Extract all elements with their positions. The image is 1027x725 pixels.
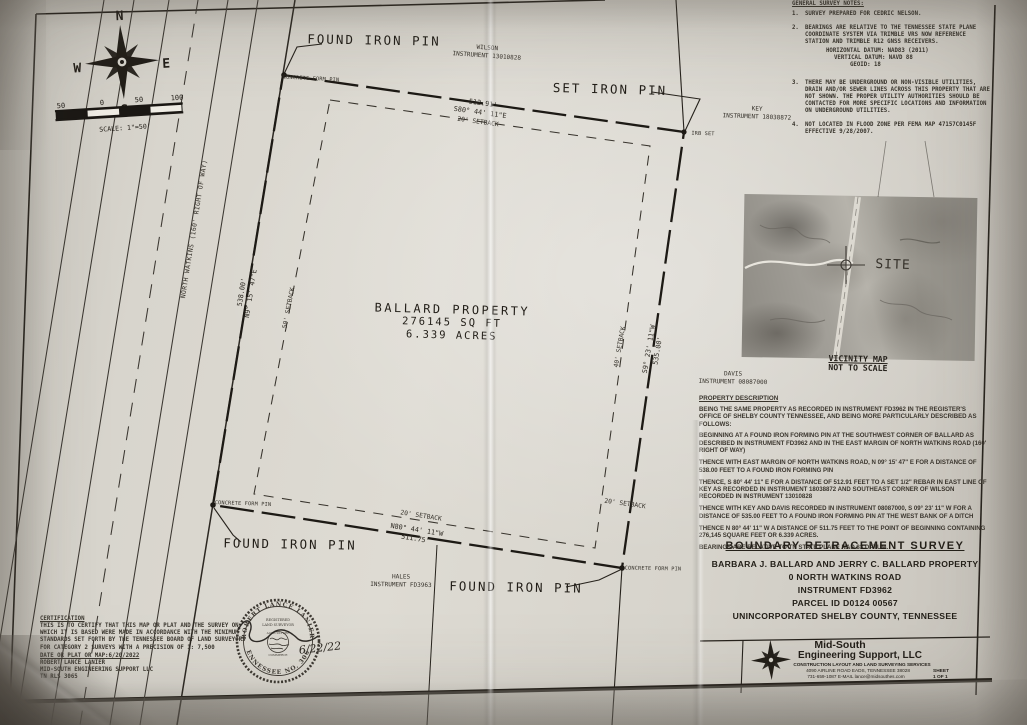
- note-item: 2. BEARINGS ARE RELATIVE TO THE TENNESSE…: [792, 25, 990, 46]
- certification-block: CERTIFICATION THIS IS TO CERTIFY THAT TH…: [40, 616, 252, 681]
- ditch-line: [612, 568, 622, 725]
- note-text: BEARINGS ARE RELATIVE TO THE TENNESSEE S…: [805, 25, 990, 46]
- key-adjoiner-label: KEY INSTRUMENT 18038872: [722, 104, 791, 121]
- note-item: 1. SURVEY PREPARED FOR CEDRIC NELSON.: [792, 11, 990, 18]
- instrument-line: INSTRUMENT FD3962: [699, 584, 991, 597]
- hales-instrument: INSTRUMENT FD3963: [370, 580, 432, 589]
- owner-line: BARBARA J. BALLARD AND JERRY C. BALLARD …: [699, 558, 991, 571]
- certification-title: CERTIFICATION: [40, 616, 252, 623]
- davis-instrument: INSTRUMENT 08087000: [699, 377, 768, 386]
- general-survey-notes: GENERAL SURVEY NOTES: 1. SURVEY PREPARED…: [792, 1, 990, 143]
- border-bottom: [2, 680, 992, 702]
- parcel-label: BALLARD PROPERTY 276145 SQ FT 6.339 ACRE…: [374, 301, 531, 344]
- geoid: GEOID: 18: [850, 62, 990, 69]
- certification-license: TN RLS 3065: [40, 674, 252, 681]
- notes-title: GENERAL SURVEY NOTES:: [792, 1, 990, 8]
- description-paragraph: THENCE WITH EAST MARGIN OF NORTH WATKINS…: [699, 459, 987, 474]
- certification-body: THIS IS TO CERTIFY THAT THIS MAP OR PLAT…: [40, 623, 252, 652]
- jurisdiction-line: UNINCORPORATED SHELBY COUNTY, TENNESSEE: [699, 610, 991, 623]
- compass-west-label: W: [73, 61, 82, 76]
- found-iron-pin-label-southwest: FOUND IRON PIN: [223, 535, 357, 552]
- note-number: 1.: [792, 11, 805, 18]
- survey-plat-photo: N E S W ROBERT LANCE LANIER: [0, 0, 1027, 725]
- firm-services-line: CONSTRUCTION LAYOUT AND LAND SURVEYING S…: [793, 662, 930, 667]
- vicinity-caption-scale: NOT TO SCALE: [828, 363, 887, 373]
- scale-tick-100: 100: [170, 94, 183, 103]
- set-iron-pin-label: SET IRON PIN: [553, 80, 668, 98]
- property-description: PROPERTY DESCRIPTION BEING THE SAME PROP…: [699, 395, 987, 556]
- key-west-line: [676, 0, 684, 132]
- border-left: [10, 14, 36, 707]
- site-label: SITE: [875, 257, 911, 273]
- irb-set-label: IRB SET: [691, 131, 714, 138]
- compass-rose-icon: N E S W: [70, 7, 172, 121]
- note-number: 4.: [792, 122, 805, 136]
- fold-mark: [925, 141, 934, 197]
- note-number: 3.: [792, 80, 805, 115]
- found-iron-pin-label-southeast: FOUND IRON PIN: [449, 578, 583, 595]
- description-paragraph: THENCE N 80° 44' 11" W A DISTANCE OF 511…: [699, 525, 987, 540]
- firm-logo-star-icon: [750, 639, 791, 680]
- scale-tick-50-left: 50: [57, 102, 66, 111]
- compass-east-label: E: [162, 56, 171, 71]
- property-description-title: PROPERTY DESCRIPTION: [699, 395, 987, 403]
- note-item: 3. THERE MAY BE UNDERGROUND OR NON-VISIB…: [792, 80, 990, 115]
- note-text: NOT LOCATED IN FLOOD ZONE PER FEMA MAP 4…: [805, 122, 990, 136]
- description-paragraph: BEING THE SAME PROPERTY AS RECORDED IN I…: [699, 406, 987, 428]
- hales-adjoiner-label: HALES INSTRUMENT FD3963: [370, 573, 432, 589]
- datum-lines: HORIZONTAL DATUM: NAD83 (2011) VERTICAL …: [826, 48, 990, 69]
- note-text: SURVEY PREPARED FOR CEDRIC NELSON.: [805, 11, 921, 18]
- certification-company: MID-SOUTH ENGINEERING SUPPORT LLC: [40, 667, 252, 674]
- title-block: BOUNDARY RETRACEMENT SURVEY BARBARA J. B…: [699, 540, 991, 623]
- scale-bar: [55, 102, 183, 121]
- seal-commerce-label: COMMERCE: [268, 653, 287, 657]
- description-paragraph: THENCE, S 80° 44' 11" E FOR A DISTANCE O…: [699, 479, 987, 501]
- address-line: 0 NORTH WATKINS ROAD: [699, 571, 991, 584]
- fold-mark: [878, 141, 886, 197]
- certification-date-line: DATE OR PLAT OR MAP:6/20/2022: [40, 653, 252, 660]
- seal-registered-label: REGISTERED: [266, 618, 290, 622]
- sheet-number: 1 OF 1: [933, 675, 949, 681]
- horizontal-datum: HORIZONTAL DATUM: NAD83 (2011): [826, 48, 990, 55]
- hales-division-line: [427, 545, 437, 725]
- firm-address-line: 4090 AIRLINE ROAD EADS, TENNESSEE 38028: [806, 668, 910, 673]
- firm-contact-line: 731-659-1087 E-MAIL lance@midsouthes.com: [807, 674, 904, 679]
- vicinity-roads: [745, 197, 952, 357]
- compass-north-label: N: [115, 9, 124, 24]
- site-marker-icon: [827, 246, 865, 284]
- sheet-block: SHEET 1 OF 1: [933, 669, 949, 681]
- description-paragraph: THENCE WITH KEY AND DAVIS RECORDED IN IN…: [699, 505, 987, 520]
- scale-tick-0: 0: [100, 99, 105, 107]
- vertical-datum: VERTICAL DATUM: NAVD 88: [834, 55, 990, 62]
- survey-title: BOUNDARY RETRACEMENT SURVEY: [699, 540, 991, 552]
- seal-surveyor-label: LAND SURVEYOR: [262, 623, 294, 627]
- note-text: THERE MAY BE UNDERGROUND OR NON-VISIBLE …: [805, 80, 990, 115]
- certification-surveyor: ROBERT LANCE LANIER: [40, 660, 252, 667]
- davis-adjoiner-label: DAVIS INSTRUMENT 08087000: [699, 370, 768, 386]
- description-paragraph: BEGINNING AT A FOUND IRON FORMING PIN AT…: [699, 432, 987, 454]
- note-item: 4. NOT LOCATED IN FLOOD ZONE PER FEMA MA…: [792, 122, 990, 136]
- parcel-id-line: PARCEL ID D0124 00567: [699, 597, 991, 610]
- note-number: 2.: [792, 25, 805, 46]
- vicinity-caption: VICINITY MAP NOT TO SCALE: [828, 354, 887, 374]
- concrete-form-pin-label-se: CONCRETE FORM PIN: [625, 566, 682, 573]
- found-iron-pin-label-north: FOUND IRON PIN: [307, 31, 441, 48]
- scale-tick-50-right: 50: [135, 96, 144, 105]
- firm-name-line2: Engineering Support, LLC: [798, 650, 922, 661]
